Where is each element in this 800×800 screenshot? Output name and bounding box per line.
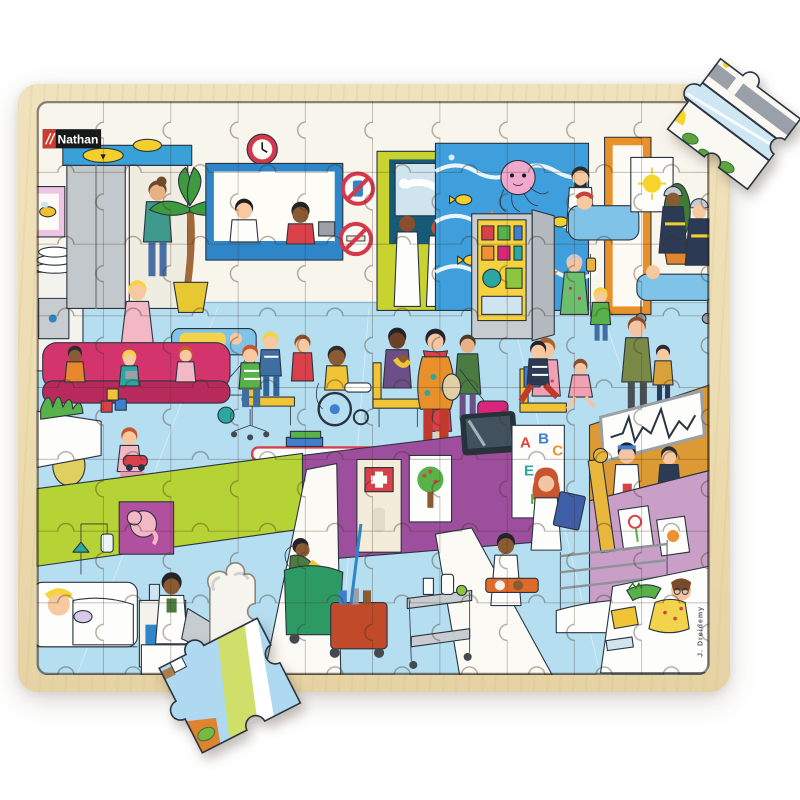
loose-piece-bottom bbox=[128, 606, 338, 786]
puzzle-artwork: ▼ bbox=[34, 101, 712, 675]
wooden-tray: ▼ bbox=[18, 84, 730, 692]
product-photo: ▼ bbox=[0, 0, 800, 800]
loose-piece-top-right bbox=[652, 46, 800, 216]
puzzle-cut-lines bbox=[37, 101, 710, 675]
